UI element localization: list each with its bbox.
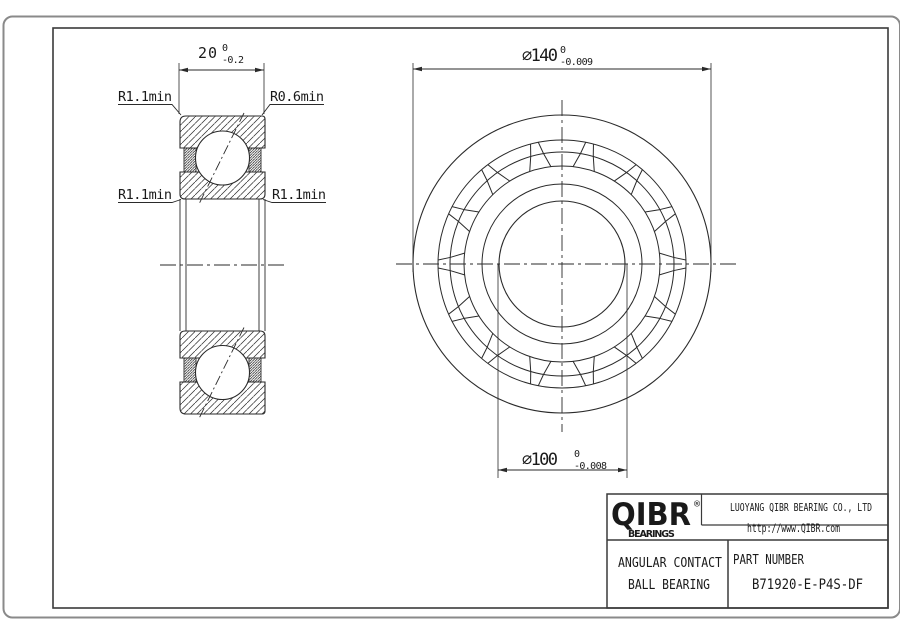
- cage-section-top-right: [249, 148, 261, 172]
- cage-section-top-left: [184, 148, 196, 172]
- width-dim-tol-lower: -0.2: [222, 55, 244, 66]
- part-number-value: B71920-E-P4S-DF: [752, 577, 863, 593]
- bore-dim-tol-upper: 0: [574, 449, 580, 460]
- cage-section-bottom-left: [184, 358, 196, 382]
- cage-pocket: [583, 144, 636, 186]
- section-view: 20 0 -0.2 R1.1min R0.6min R1.1min R1.1mi…: [118, 43, 326, 419]
- cage-pocket: [583, 341, 636, 383]
- arrowhead-right: [702, 67, 711, 71]
- cage-pocket: [623, 306, 672, 358]
- ball-bottom: [196, 346, 250, 400]
- arrowhead-left: [179, 68, 188, 72]
- radius-label-bottom-right: R1.1min: [272, 187, 326, 203]
- cage-pocket: [488, 144, 541, 186]
- logo-text: QIBR: [611, 497, 691, 533]
- bearing-drawing-canvas: 20 0 -0.2 R1.1min R0.6min R1.1min R1.1mi…: [0, 0, 900, 636]
- qibr-logo: QIBR ® BEARINGS: [611, 497, 701, 540]
- ball-top: [196, 131, 250, 185]
- arrowhead-left: [413, 67, 422, 71]
- od-dim-tol-lower: -0.009: [560, 57, 593, 68]
- registered-trademark-icon: ®: [694, 499, 701, 510]
- width-dim-tol-upper: 0: [222, 43, 228, 54]
- cage-pocket: [623, 170, 672, 222]
- width-dimension: 20 0 -0.2: [179, 43, 264, 114]
- company-name: LUOYANG QIBR BEARING CO., LTD: [730, 501, 872, 514]
- radius-label-top-left: R1.1min: [118, 89, 172, 105]
- logo-subtext: BEARINGS: [628, 529, 677, 540]
- arrowhead-left: [498, 468, 507, 472]
- radius-label-bottom-left: R1.1min: [118, 187, 172, 203]
- drawing-page: 20 0 -0.2 R1.1min R0.6min R1.1min R1.1mi…: [0, 0, 900, 636]
- cage-pocket: [488, 341, 541, 383]
- product-type-line1: ANGULAR CONTACT: [618, 555, 722, 571]
- cage-pocket: [452, 170, 501, 222]
- width-dim-value: 20: [198, 44, 217, 62]
- cage-pocket: [452, 306, 501, 358]
- part-number-label: PART NUMBER: [733, 552, 805, 568]
- od-dim-tol-upper: 0: [560, 45, 566, 56]
- cage-section-bottom-right: [249, 358, 261, 382]
- title-block: QIBR ® BEARINGS LUOYANG QIBR BEARING CO.…: [607, 494, 888, 608]
- bore-diameter-dimension: ⌀100 0 -0.008: [498, 264, 627, 478]
- company-website: http://www.QIBR.com: [747, 521, 840, 535]
- arrowhead-right: [618, 468, 627, 472]
- arrowhead-right: [255, 68, 264, 72]
- bore-dim-value: ⌀100: [522, 450, 558, 470]
- bore-dim-tol-lower: -0.008: [574, 461, 607, 472]
- front-view: ⌀140 0 -0.009 ⌀100 0 -0.008: [396, 45, 740, 478]
- product-type-line2: BALL BEARING: [628, 577, 710, 593]
- od-dim-value: ⌀140: [522, 46, 558, 66]
- radius-label-top-right: R0.6min: [270, 89, 324, 105]
